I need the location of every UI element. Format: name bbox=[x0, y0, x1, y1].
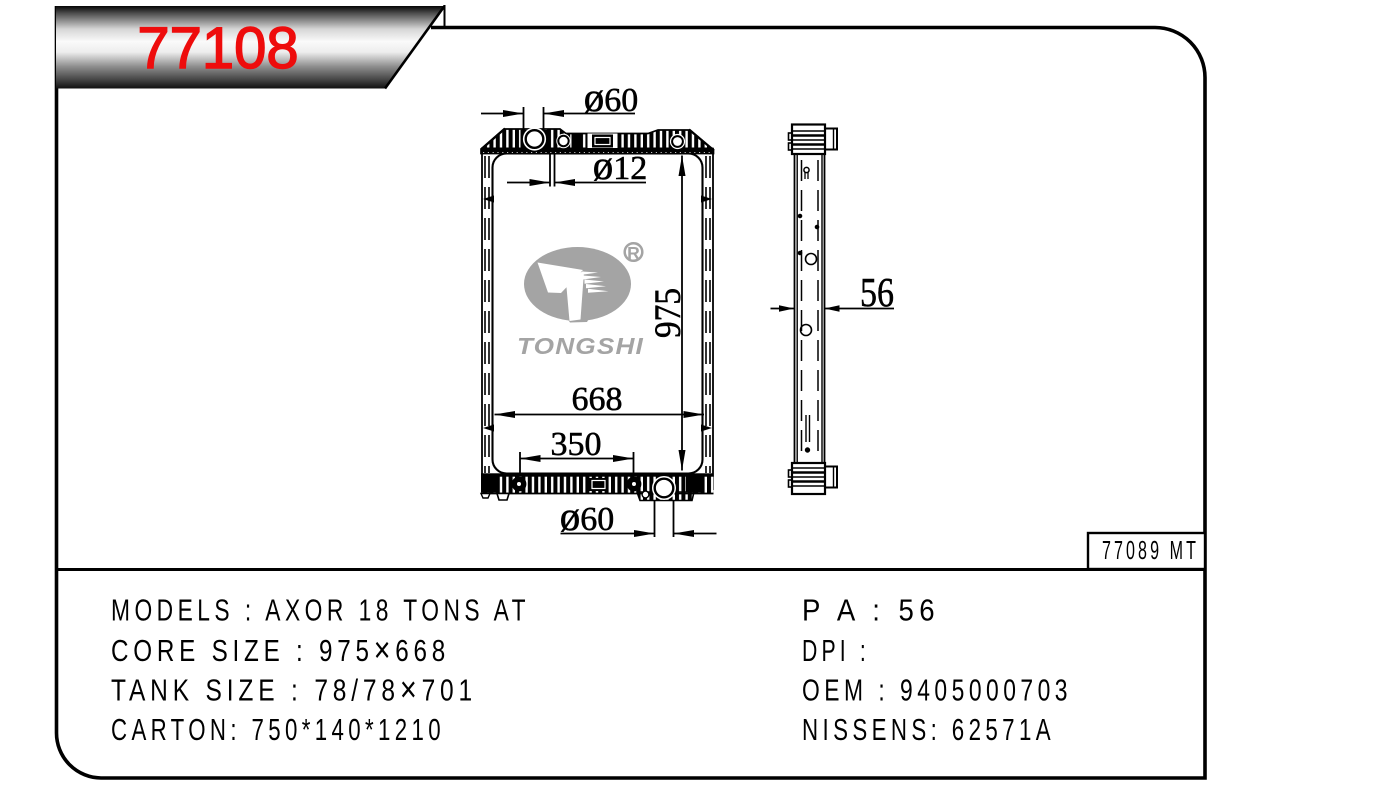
svg-text:P A : 56: P A : 56 bbox=[802, 594, 940, 628]
svg-text:TONGSHI: TONGSHI bbox=[517, 333, 644, 359]
svg-text:R: R bbox=[627, 243, 640, 263]
svg-text:DPI :: DPI : bbox=[802, 634, 870, 668]
svg-text:77108: 77108 bbox=[137, 16, 298, 81]
svg-text:CORE SIZE : 975×668: CORE SIZE : 975×668 bbox=[111, 629, 450, 670]
svg-text:975: 975 bbox=[647, 288, 688, 338]
svg-text:ø60: ø60 bbox=[560, 493, 615, 539]
svg-text:MODELS : AXOR 18 TONS AT: MODELS : AXOR 18 TONS AT bbox=[111, 594, 530, 628]
svg-text:77089 MT: 77089 MT bbox=[1102, 535, 1199, 565]
svg-text:ø60: ø60 bbox=[584, 74, 639, 120]
svg-text:350: 350 bbox=[551, 426, 602, 463]
svg-text:668: 668 bbox=[572, 381, 623, 418]
svg-text:NISSENS: 62571A: NISSENS: 62571A bbox=[802, 713, 1055, 747]
svg-text:CARTON: 750*140*1210: CARTON: 750*140*1210 bbox=[111, 713, 445, 747]
svg-text:OEM : 9405000703: OEM : 9405000703 bbox=[802, 674, 1072, 708]
svg-text:TANK SIZE : 78/78×701: TANK SIZE : 78/78×701 bbox=[111, 669, 477, 710]
svg-text:56: 56 bbox=[860, 269, 894, 315]
